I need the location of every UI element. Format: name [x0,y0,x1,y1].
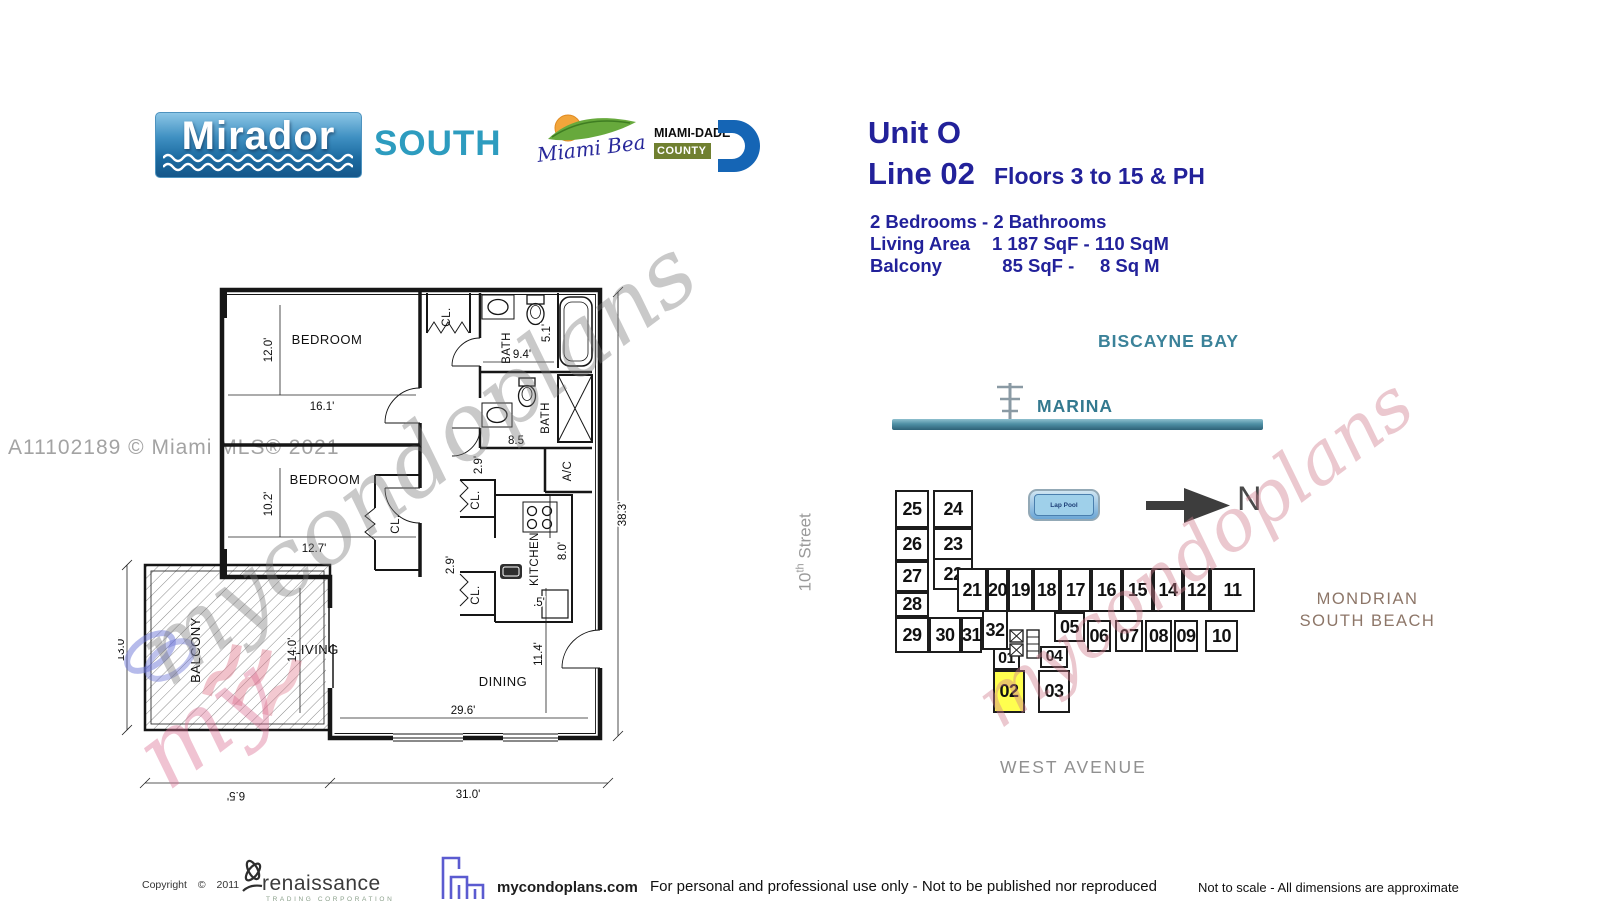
site-unit-30: 30 [929,617,961,653]
website-label: mycondoplans.com [497,879,638,896]
room-ac: A/C [562,461,574,482]
copyright-text: Copyright © 2011 [142,879,239,891]
room-bedroom1: BEDROOM [292,332,363,347]
miami-beach-logo: Miami Beach [530,106,645,184]
renaissance-logo-subtext: TRADING CORPORATION [266,896,394,903]
county-logo-line2: COUNTY [654,143,711,159]
seawall-bar [892,419,1263,430]
site-unit-12: 12 [1183,568,1210,612]
closet-bedroom2: CL. [390,514,402,533]
site-unit-18: 18 [1033,568,1060,612]
closet-top: CL. [441,307,453,326]
north-label: N [1237,480,1262,519]
site-unit-28: 28 [895,592,929,617]
floors-label: Floors 3 to 15 & PH [994,163,1205,190]
site-unit-19: 19 [1008,568,1033,612]
street-sup: th [795,563,807,572]
dim-kitchen-d: 8.0' [557,542,569,560]
site-unit-04: 04 [1040,646,1068,668]
room-bath2: BATH [540,402,552,434]
site-unit-24: 24 [933,490,973,528]
building-suffix-label: SOUTH [374,124,502,164]
bed-bath-summary: 2 Bedrooms - 2 Bathrooms [870,211,1106,233]
watermark-scribble [112,600,332,730]
mondrian-line2: SOUTH BEACH [1285,610,1450,632]
lap-pool-label: Lap Pool [1034,494,1094,516]
street-num: 10 [795,573,814,592]
site-unit-32: 32 [982,610,1008,650]
room-bedroom2: BEDROOM [290,472,361,487]
site-unit-08: 08 [1145,620,1172,652]
site-unit-23: 23 [933,528,973,561]
site-unit-10: 10 [1205,620,1238,652]
site-unit-17: 17 [1060,568,1091,612]
room-dining: DINING [479,674,528,689]
dim-balcony-w: 6.5' [227,789,245,801]
street-10th-label: 10th Street [795,497,816,607]
site-unit-31: 31 [961,617,982,653]
dim-kitchen-s: .5' [533,597,545,609]
closet-hall1: CL. [470,490,482,509]
site-unit-15: 15 [1122,568,1153,612]
street-word: Street [795,513,814,563]
living-area-value: 1 187 SqF - 110 SqM [992,233,1169,254]
scale-note-text: Not to scale - All dimensions are approx… [1198,880,1459,895]
site-unit-26: 26 [895,528,929,561]
floorplan-document: Mirador SOUTH Miami Beach MIAMI-DADE COU… [0,0,1600,922]
mondrian-line1: MONDRIAN [1285,588,1450,610]
site-unit-21: 21 [957,568,987,612]
site-unit-16: 16 [1091,568,1122,612]
dim-overall-h: 38.3' [617,502,629,527]
dim-bedroom2-h: 10.2' [263,492,275,517]
room-kitchen: KITCHEN [529,532,541,586]
closet-hall2: CL. [470,585,482,604]
line-title: Line 02 [868,156,975,192]
north-arrow-icon [1146,486,1234,526]
dim-dining-h: 11.4' [533,642,545,666]
disclaimer-text: For personal and professional use only -… [650,878,1157,895]
lap-pool: Lap Pool [1028,489,1100,521]
site-unit-27: 27 [895,561,929,592]
living-area-row: Living Area1 187 SqF - 110 SqM [870,233,1169,255]
site-unit-25: 25 [895,490,929,528]
county-logo-d-icon [716,116,762,178]
site-unit-14: 14 [1153,568,1183,612]
dim-bedroom1-w: 16.1' [310,401,335,413]
dim-living-w: 29.6' [451,705,476,717]
west-avenue-label: WEST AVENUE [1000,757,1147,778]
dim-hall1: 2.9' [473,456,485,474]
dim-bath1-d: 5.1' [541,324,553,342]
balcony-area-value: 85 SqF - 8 Sq M [992,255,1160,276]
site-unit-11: 11 [1210,568,1255,612]
site-unit-07: 07 [1115,620,1143,652]
site-unit-03: 03 [1038,670,1070,713]
miami-beach-logo-icon: Miami Beach [530,106,645,184]
dim-bedroom1-h: 12.0' [263,338,275,363]
mirador-logo-text: Mirador [156,114,361,159]
mycondoplans-buildings-icon [440,855,490,901]
marina-label: MARINA [1037,396,1113,417]
site-unit-09: 09 [1174,620,1198,652]
dim-bath1-w: 9.4' [513,349,531,361]
marina-dock-icon [995,381,1025,423]
site-unit-05: 05 [1054,612,1085,642]
living-area-label: Living Area [870,233,992,255]
dim-bath2-w: 8.5 [508,435,524,447]
mirador-logo: Mirador [155,112,362,178]
site-unit-29: 29 [895,617,929,653]
renaissance-logo-text: renaissance [262,872,381,896]
room-bath1: BATH [501,332,513,364]
dim-hall2: 2.9' [445,556,457,574]
biscayne-bay-label: BISCAYNE BAY [1098,331,1239,352]
building-core-icon [1008,628,1042,674]
unit-title: Unit O [868,115,961,151]
site-unit-20: 20 [987,568,1008,612]
site-unit-02-highlighted: 02 [993,670,1025,713]
miami-dade-county-logo: MIAMI-DADE COUNTY [654,116,762,180]
site-unit-06: 06 [1087,620,1111,652]
balcony-area-row: Balcony 85 SqF - 8 Sq M [870,255,1160,277]
dim-bedroom2-w: 12.7' [302,543,327,555]
balcony-area-label: Balcony [870,255,992,277]
mondrian-label: MONDRIAN SOUTH BEACH [1285,588,1450,632]
dim-overall-w: 31.0' [456,789,481,801]
